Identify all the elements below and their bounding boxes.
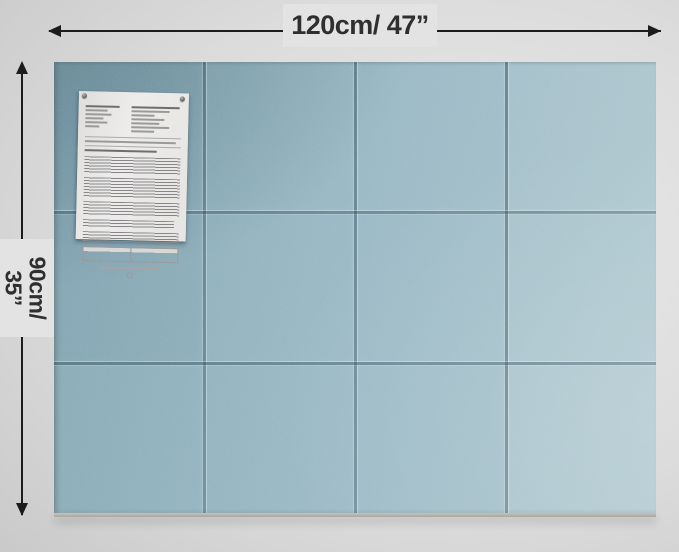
- paper-paragraph: [83, 231, 179, 244]
- felt-tile: [205, 365, 353, 513]
- paper-paragraph: [83, 219, 174, 229]
- paper-reference-line: [85, 140, 176, 144]
- height-label-rotated-text: 90cm/ 35”: [1, 257, 49, 320]
- arrow-left-icon: [48, 25, 61, 37]
- felt-tile: [508, 365, 656, 513]
- width-dimension-label: 120cm/ 47”: [283, 4, 437, 47]
- pinned-paper-sheet: [76, 91, 189, 241]
- height-label-line1: 90cm/: [25, 257, 49, 320]
- paper-paragraph: [84, 156, 180, 175]
- wall-background: 120cm/ 47” 90cm/ 35”: [0, 0, 679, 552]
- board-bottom-edge-shadow: [54, 513, 656, 517]
- felt-tile: [357, 365, 505, 513]
- paper-signature-box: [82, 246, 178, 263]
- paper-divider: [85, 145, 181, 148]
- height-dimension-label: 90cm/ 35”: [0, 239, 54, 337]
- width-label-text: 120cm/ 47”: [291, 10, 429, 40]
- paper-header-blocks: [85, 105, 182, 135]
- paper-subject-line: [85, 149, 157, 153]
- felt-tile: [205, 62, 353, 210]
- felt-tile: [508, 213, 656, 361]
- paper-paragraph: [84, 177, 180, 199]
- paper-paragraph: [83, 201, 179, 217]
- paper-hole-mark: [127, 272, 133, 278]
- arrow-down-icon: [16, 503, 28, 516]
- felt-tile: [357, 62, 505, 210]
- push-pin-icon: [82, 93, 87, 98]
- felt-tile: [205, 213, 353, 361]
- paper-address-block-left: [85, 105, 126, 134]
- paper-address-block-right: [131, 106, 181, 135]
- push-pin-icon: [180, 96, 185, 101]
- felt-tile: [508, 62, 656, 210]
- felt-tile: [357, 213, 505, 361]
- height-label-line2: 35”: [1, 257, 25, 320]
- felt-tile: [54, 365, 202, 513]
- arrow-up-icon: [16, 61, 28, 74]
- paper-divider: [85, 136, 181, 139]
- arrow-right-icon: [648, 25, 661, 37]
